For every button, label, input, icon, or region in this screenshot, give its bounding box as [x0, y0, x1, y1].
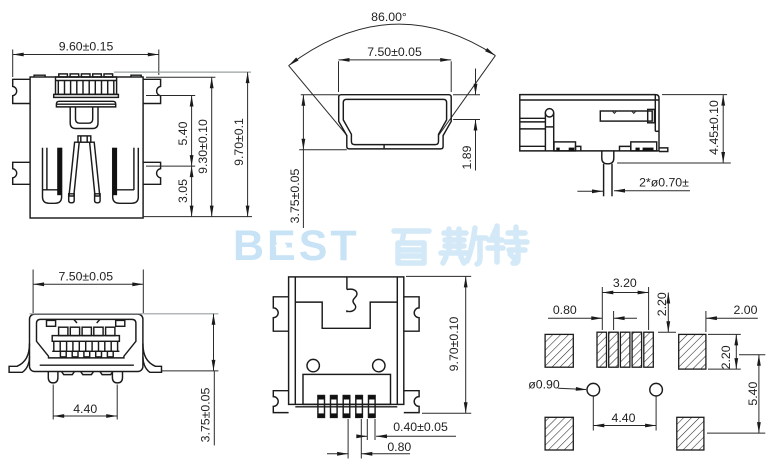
svg-text:0.40±0.05: 0.40±0.05	[393, 420, 448, 434]
svg-text:2.20: 2.20	[655, 292, 669, 316]
svg-text:9.70±0.10: 9.70±0.10	[447, 317, 461, 372]
svg-text:2.20: 2.20	[719, 345, 733, 369]
svg-text:4.45±0.10: 4.45±0.10	[707, 100, 721, 155]
svg-text:5.40: 5.40	[176, 121, 190, 145]
svg-text:0.80: 0.80	[553, 303, 577, 317]
svg-text:9.70±0.1: 9.70±0.1	[232, 118, 246, 166]
svg-text:7.50±0.05: 7.50±0.05	[367, 45, 422, 59]
svg-text:3.20: 3.20	[613, 276, 637, 290]
svg-text:86.00°: 86.00°	[371, 10, 407, 24]
svg-text:BEST: BEST	[233, 222, 360, 270]
svg-text:2*ø0.70±: 2*ø0.70±	[639, 176, 689, 190]
svg-text:9.60±0.15: 9.60±0.15	[59, 40, 114, 54]
svg-text:9.30±0.10: 9.30±0.10	[196, 119, 210, 174]
svg-text:ø0.90: ø0.90	[528, 378, 560, 392]
svg-text:4.40: 4.40	[73, 402, 97, 416]
svg-text:3.75±0.05: 3.75±0.05	[288, 169, 302, 224]
svg-text:0.80: 0.80	[387, 440, 411, 454]
svg-text:5.40: 5.40	[746, 381, 760, 405]
svg-text:2.00: 2.00	[734, 303, 758, 317]
svg-text:3.05: 3.05	[176, 179, 190, 203]
svg-text:4.40: 4.40	[612, 411, 636, 425]
svg-text:3.75±0.05: 3.75±0.05	[198, 388, 212, 443]
svg-text:1.89: 1.89	[460, 145, 474, 169]
svg-text:7.50±0.05: 7.50±0.05	[58, 270, 113, 284]
